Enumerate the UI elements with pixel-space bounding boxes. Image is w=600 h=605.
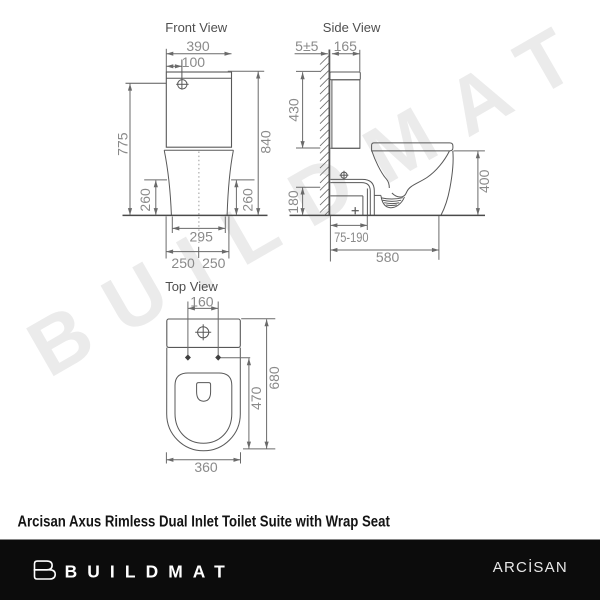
svg-text:250: 250: [202, 255, 226, 271]
svg-text:360: 360: [194, 459, 218, 475]
svg-text:75-190: 75-190: [334, 230, 369, 245]
svg-text:390: 390: [186, 38, 210, 54]
svg-text:680: 680: [266, 366, 282, 390]
svg-text:400: 400: [476, 169, 492, 193]
svg-text:Front View: Front View: [165, 20, 228, 35]
svg-text:295: 295: [190, 229, 214, 245]
svg-text:430: 430: [286, 98, 302, 122]
svg-text:260: 260: [137, 188, 153, 212]
svg-text:BUILDMAT: BUILDMAT: [65, 562, 235, 582]
svg-text:180: 180: [285, 190, 301, 214]
svg-text:260: 260: [239, 188, 255, 212]
svg-text:775: 775: [115, 132, 131, 156]
svg-text:165: 165: [334, 38, 358, 54]
svg-text:100: 100: [182, 54, 206, 70]
svg-text:ARCİSAN: ARCİSAN: [493, 558, 568, 576]
svg-text:5±5: 5±5: [295, 38, 318, 54]
svg-text:250: 250: [171, 255, 195, 271]
svg-text:470: 470: [248, 386, 264, 410]
svg-text:840: 840: [258, 130, 274, 154]
svg-text:Side View: Side View: [323, 20, 381, 35]
svg-text:580: 580: [376, 249, 400, 265]
svg-text:160: 160: [190, 294, 214, 310]
svg-text:Arcisan Axus Rimless Dual Inle: Arcisan Axus Rimless Dual Inlet Toilet S…: [18, 513, 391, 530]
svg-text:Top View: Top View: [165, 279, 218, 294]
